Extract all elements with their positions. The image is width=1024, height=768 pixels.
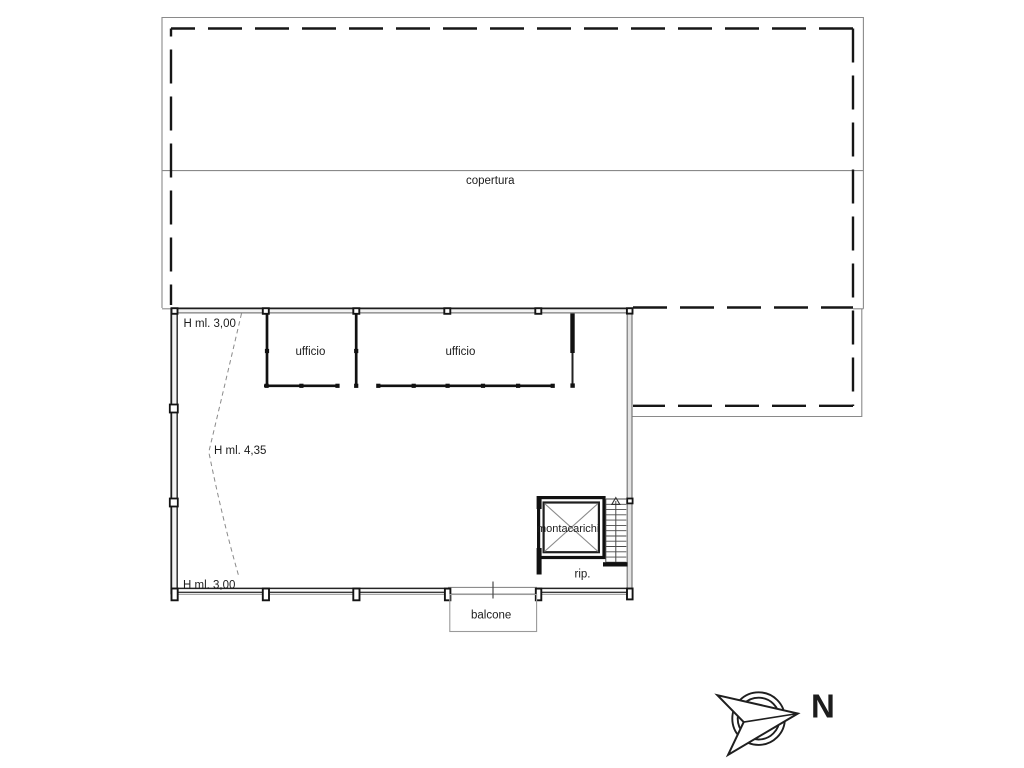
svg-text:balcone: balcone bbox=[471, 610, 511, 622]
svg-text:rip.: rip. bbox=[575, 569, 591, 581]
svg-text:ufficio: ufficio bbox=[446, 346, 476, 358]
svg-text:H ml. 4,35: H ml. 4,35 bbox=[214, 445, 266, 457]
svg-text:H ml. 3,00: H ml. 3,00 bbox=[183, 580, 235, 592]
svg-text:copertura: copertura bbox=[466, 175, 515, 187]
svg-text:ufficio: ufficio bbox=[296, 346, 326, 358]
svg-text:montacarichi: montacarichi bbox=[537, 523, 599, 535]
svg-text:H ml. 3,00: H ml. 3,00 bbox=[184, 318, 236, 330]
svg-text:N: N bbox=[811, 688, 835, 725]
